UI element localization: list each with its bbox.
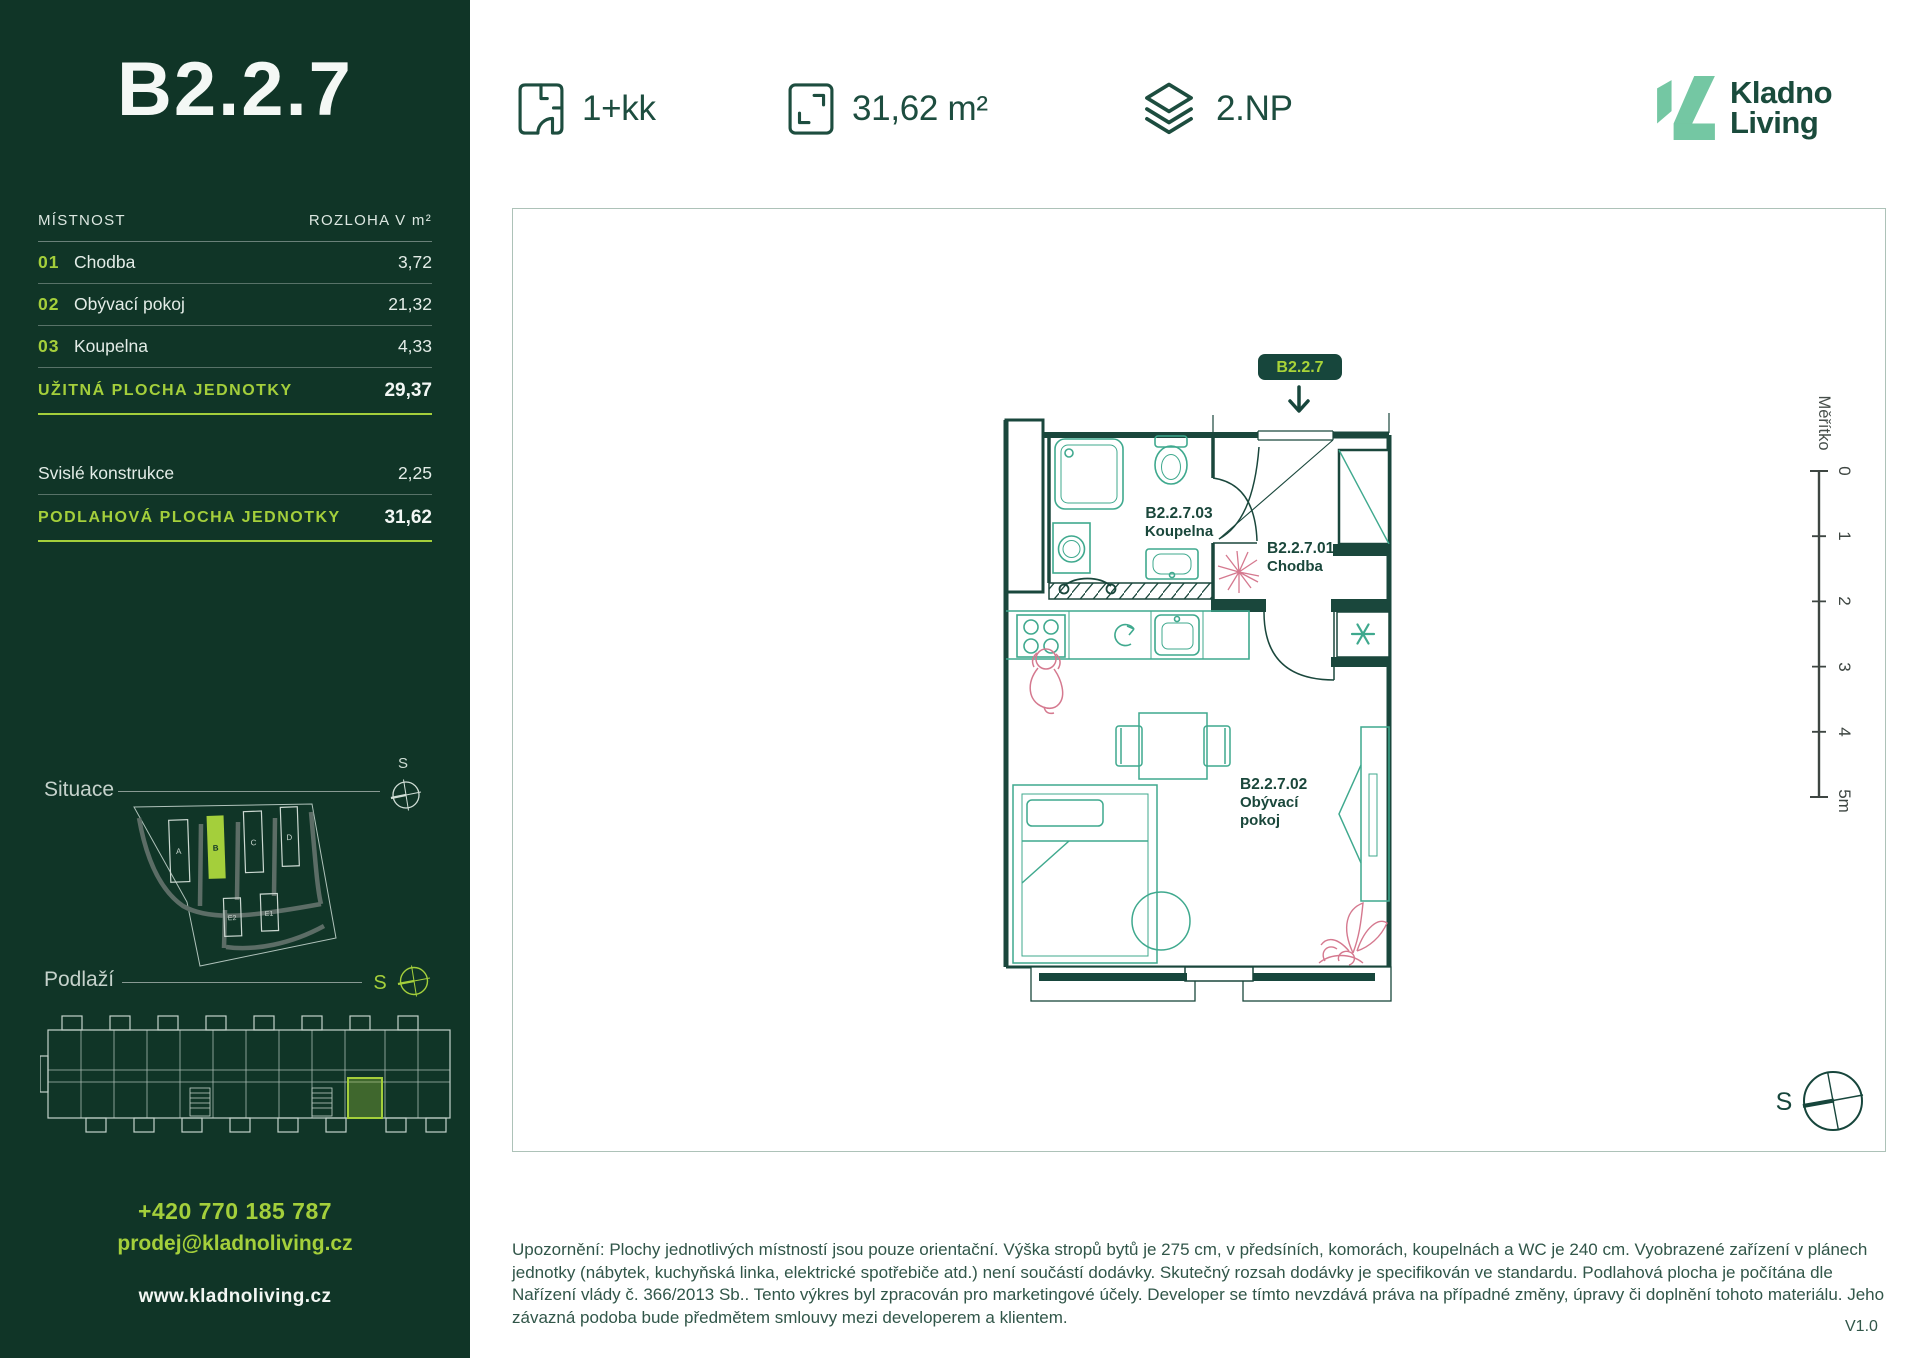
wall-segment	[1331, 599, 1389, 612]
room-name: Obývací pokoj	[74, 294, 185, 315]
living-room-furniture	[1013, 713, 1389, 963]
site-roads	[139, 812, 324, 948]
unit-badge: B2.2.7	[1258, 354, 1342, 380]
room-label-code: B2.2.7.02	[1240, 776, 1307, 793]
site-map: A B C D E2 E1	[125, 798, 350, 976]
svg-text:4: 4	[1835, 727, 1854, 736]
podlazi-divider	[122, 982, 362, 983]
col-area: ROZLOHA V m²	[309, 212, 432, 229]
svg-text:5m: 5m	[1835, 789, 1854, 813]
svg-text:S: S	[398, 755, 408, 772]
room-label-code: B2.2.7.03	[1145, 505, 1213, 522]
svg-text:0: 0	[1835, 466, 1854, 475]
usable-area-label: UŽITNÁ PLOCHA JEDNOTKY	[38, 382, 293, 400]
table-row: 01 Chodba 3,72	[38, 242, 432, 284]
email-link[interactable]: prodej@kladnoliving.cz	[0, 1232, 470, 1256]
svg-text:1: 1	[1835, 531, 1854, 540]
bathroom-door	[1213, 478, 1257, 543]
col-room: MÍSTNOST	[38, 212, 126, 229]
usable-area-value: 29,37	[384, 380, 432, 402]
brand-logo: Kladno Living	[1657, 76, 1832, 140]
room-table-header: MÍSTNOST ROZLOHA V m²	[38, 212, 432, 242]
north-compass-icon: S	[368, 958, 438, 1004]
wall-segment	[1333, 544, 1389, 556]
svg-text:C: C	[250, 838, 256, 847]
walls	[1006, 413, 1389, 967]
room-table: MÍSTNOST ROZLOHA V m² 01 Chodba 3,72 02 …	[38, 212, 432, 542]
room-number: 02	[38, 294, 74, 315]
svg-text:B: B	[213, 844, 219, 853]
table-row: 03 Koupelna 4,33	[38, 326, 432, 368]
kitchen-counter	[1006, 611, 1249, 659]
entrance-arrow-icon	[1290, 387, 1308, 411]
rotate-arrow-icon	[1115, 625, 1134, 646]
chair	[1116, 726, 1142, 766]
room-name: Koupelna	[74, 336, 148, 357]
living-room-door	[1264, 612, 1334, 680]
room-area: 4,33	[398, 336, 432, 357]
toilet	[1155, 436, 1187, 484]
version-label: V1.0	[1845, 1318, 1878, 1336]
floor-area-row: PODLAHOVÁ PLOCHA JEDNOTKY 31,62	[38, 495, 432, 542]
spec-layout: 1+kk	[518, 82, 656, 136]
compass-rose-icon: S	[1776, 1072, 1863, 1131]
structures-value: 2,25	[398, 463, 432, 484]
website-link[interactable]: www.kladnoliving.cz	[0, 1286, 470, 1308]
svg-text:S: S	[373, 972, 386, 994]
sidebar: B2.2.7 MÍSTNOST ROZLOHA V m² 01 Chodba 3…	[0, 0, 470, 1358]
structures-label: Svislé konstrukce	[38, 463, 174, 484]
highlighted-unit	[348, 1078, 382, 1118]
site-buildings: A B C D E2 E1	[168, 807, 301, 938]
scale-ruler: 0 1 2 3 4 5m Měřítko	[1810, 395, 1854, 812]
room-number: 03	[38, 336, 74, 357]
usable-area-row: UŽITNÁ PLOCHA JEDNOTKY 29,37	[38, 368, 432, 415]
svg-text:3: 3	[1835, 662, 1854, 671]
chair	[1204, 726, 1230, 766]
hall-plant	[1218, 551, 1259, 593]
kitchen-sink	[1155, 615, 1199, 655]
floor-area-value: 31,62	[384, 507, 432, 529]
svg-text:E2: E2	[228, 915, 237, 922]
bed	[1013, 785, 1157, 963]
podlazi-label: Podlaží	[44, 968, 114, 992]
disclaimer-text: Upozornění: Plochy jednotlivých místnost…	[512, 1239, 1890, 1329]
kitchen	[1006, 611, 1249, 659]
spec-area-label: 31,62 m²	[852, 89, 988, 129]
plant	[1319, 903, 1387, 965]
hatched-wall-strip	[1049, 583, 1213, 599]
dining-table	[1116, 713, 1230, 779]
kladno-living-logo-icon	[1657, 76, 1715, 140]
floor-area-label: PODLAHOVÁ PLOCHA JEDNOTKY	[38, 509, 341, 527]
room-area: 21,32	[388, 294, 432, 315]
compass-letter: S	[1776, 1088, 1793, 1116]
floor-plan-drawing: B2.2.7	[513, 209, 1885, 1151]
logo-line1: Kladno	[1730, 78, 1832, 108]
shower	[1055, 439, 1123, 509]
wardrobe	[1339, 450, 1389, 544]
scale-label: Měřítko	[1815, 395, 1833, 450]
page-title: B2.2.7	[0, 46, 470, 133]
svg-text:D: D	[286, 833, 292, 842]
brand-logo-text: Kladno Living	[1730, 78, 1832, 138]
floor-plan-panel: B2.2.7	[512, 208, 1886, 1152]
area-icon	[788, 82, 834, 136]
floor-overview-plan	[40, 1008, 460, 1140]
north-compass-icon: S	[386, 750, 428, 816]
wall-segment	[1211, 599, 1266, 612]
room-name: Chodba	[74, 252, 135, 273]
table-row: 02 Obývací pokoj 21,32	[38, 284, 432, 326]
room-area: 3,72	[398, 252, 432, 273]
logo-line2: Living	[1730, 108, 1832, 138]
contact-block: +420 770 185 787 prodej@kladnoliving.cz …	[0, 1198, 470, 1308]
room-label-name: Obývací	[1240, 794, 1299, 811]
tv-cabinet	[1339, 727, 1389, 901]
spec-floor: 2.NP	[1140, 82, 1293, 136]
phone-number: +420 770 185 787	[0, 1198, 470, 1225]
side-table	[1132, 892, 1190, 950]
situace-divider	[118, 791, 380, 792]
entry-door	[1219, 431, 1333, 539]
room-label-name: Chodba	[1267, 558, 1323, 575]
bathroom-sink	[1146, 549, 1198, 579]
svg-text:2: 2	[1835, 596, 1854, 605]
room-label-name: pokoj	[1240, 812, 1280, 829]
room-label-name: Koupelna	[1145, 523, 1214, 540]
svg-text:E1: E1	[265, 911, 274, 918]
unit-layout-icon	[518, 82, 564, 136]
wall-segment	[1331, 657, 1389, 667]
washing-machine	[1053, 523, 1090, 573]
svg-text:A: A	[176, 847, 182, 856]
spec-area: 31,62 m²	[788, 82, 988, 136]
spec-layout-label: 1+kk	[582, 89, 656, 129]
windows	[1031, 967, 1391, 1001]
situace-label: Situace	[44, 778, 114, 802]
structures-row: Svislé konstrukce 2,25	[38, 453, 432, 495]
spec-floor-label: 2.NP	[1216, 89, 1293, 129]
room-number: 01	[38, 252, 74, 273]
svg-text:B2.2.7: B2.2.7	[1276, 359, 1323, 376]
floor-level-icon	[1140, 82, 1198, 136]
room-label-code: B2.2.7.01	[1267, 540, 1335, 557]
